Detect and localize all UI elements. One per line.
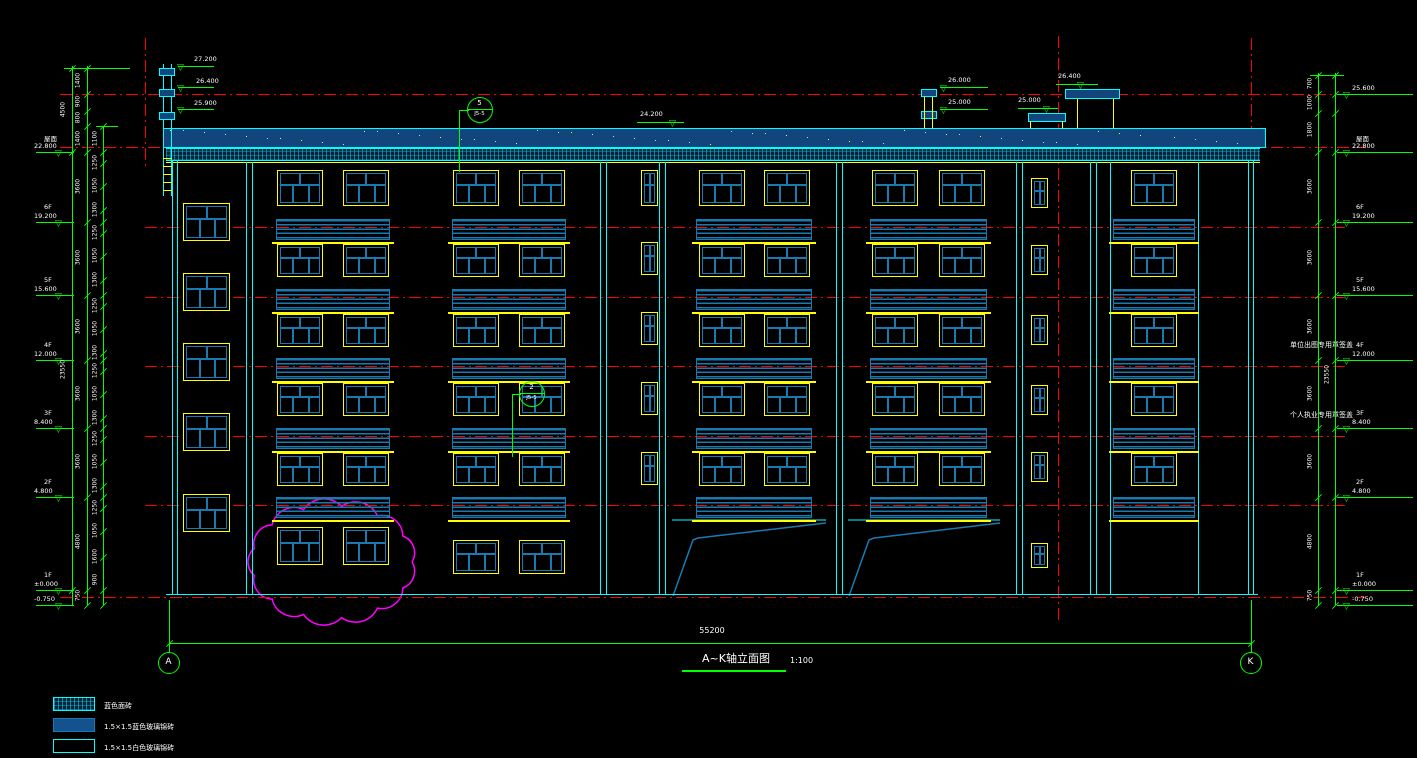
window-mullion xyxy=(484,398,486,413)
window-transom xyxy=(280,466,320,468)
roof-speckle xyxy=(280,138,281,139)
window-mullion xyxy=(786,247,788,257)
window-mullion xyxy=(887,468,889,483)
window-mullion xyxy=(1146,468,1148,483)
window-mullion xyxy=(475,317,477,327)
window xyxy=(641,382,658,415)
facade-line xyxy=(1198,162,1199,594)
facade-line xyxy=(1253,161,1254,594)
window xyxy=(277,170,323,206)
callout-divider xyxy=(520,393,544,394)
window-mullion xyxy=(308,186,310,203)
balcony-railing xyxy=(452,428,566,449)
chimney-cap xyxy=(159,68,175,76)
dimension-text: 3600 xyxy=(1307,374,1314,414)
window-mullion xyxy=(1146,259,1148,274)
dimension-text: 1800 xyxy=(1307,110,1314,150)
facade-line xyxy=(1110,162,1111,594)
window-mullion xyxy=(484,329,486,344)
dimension-tick xyxy=(84,602,91,609)
window-mullion xyxy=(214,511,216,529)
roof-box-support xyxy=(1030,121,1031,128)
window-mullion xyxy=(484,259,486,274)
window xyxy=(939,170,985,206)
vent-stack-line xyxy=(932,97,933,128)
facade-line xyxy=(836,162,837,594)
window-transom xyxy=(280,327,320,329)
detail-callout: 2J5-5 xyxy=(519,381,545,407)
window-mullion xyxy=(961,247,963,257)
roof-speckle xyxy=(1056,142,1057,143)
window xyxy=(939,383,985,416)
elevation-drawing: A~K轴立面图 1:100 55200 A K 蓝色面砖 1.5×1.5蓝色玻璃… xyxy=(0,0,1417,758)
balcony-sill xyxy=(272,520,394,522)
window-mullion xyxy=(954,329,956,344)
level-marker-icon: ▽ xyxy=(55,495,62,504)
legend-label: 蓝色面砖 xyxy=(104,701,132,711)
window-transom xyxy=(1134,466,1174,468)
axis-bubble-k: K xyxy=(1240,652,1262,674)
roof-speckle xyxy=(1043,142,1044,143)
dimension-text: 23550 xyxy=(60,350,67,390)
roof-band xyxy=(163,128,1266,148)
roof-speckle xyxy=(204,132,205,133)
level-marker-icon: ▽ xyxy=(1343,603,1350,612)
roof-speckle xyxy=(668,140,669,141)
window-transom xyxy=(875,466,915,468)
window xyxy=(183,413,230,451)
window xyxy=(277,453,323,486)
window xyxy=(519,540,565,574)
level-label: 2F xyxy=(1356,478,1364,486)
roof-speckle xyxy=(377,131,378,132)
level-marker-icon: ▽ xyxy=(177,107,184,116)
drawing-scale: 1:100 xyxy=(790,656,813,665)
level-marker-icon: ▽ xyxy=(55,603,62,612)
window-mullion xyxy=(550,398,552,413)
window-mullion xyxy=(779,186,781,203)
dimension-text: 3600 xyxy=(75,442,82,482)
balcony-railing xyxy=(696,428,812,449)
window-mullion xyxy=(970,468,972,483)
window-mullion xyxy=(468,468,470,483)
window-mullion xyxy=(468,329,470,344)
window-mullion xyxy=(649,245,651,272)
level-label: 5F xyxy=(44,276,52,284)
window-transom xyxy=(280,542,320,544)
roof-speckle xyxy=(592,134,593,135)
balcony-railing xyxy=(276,219,390,240)
window-mullion xyxy=(1153,317,1155,327)
window-mullion xyxy=(199,511,201,529)
window-mullion xyxy=(358,544,360,562)
window xyxy=(453,170,499,206)
window-mullion xyxy=(468,259,470,274)
roof-speckle xyxy=(946,134,947,135)
window-transom xyxy=(522,466,562,468)
window-mullion xyxy=(365,530,367,542)
roof-elevation-text: 27.200 xyxy=(194,55,217,63)
level-label: 6F xyxy=(1356,203,1364,211)
level-label: 3F xyxy=(1356,409,1364,417)
window-transom xyxy=(346,184,386,186)
window-mullion xyxy=(1153,247,1155,257)
window-mullion xyxy=(903,398,905,413)
window-transom xyxy=(767,466,807,468)
chimney-cap xyxy=(159,89,175,97)
window-mullion xyxy=(961,317,963,327)
dimension-text: 3600 xyxy=(1307,167,1314,207)
window xyxy=(183,494,230,532)
level-value: -0.750 xyxy=(34,595,55,603)
window-mullion xyxy=(475,543,477,553)
window xyxy=(1031,245,1048,275)
window-mullion xyxy=(1039,546,1041,565)
balcony-railing xyxy=(870,289,987,310)
roof-speckle xyxy=(1237,143,1238,144)
window xyxy=(872,170,918,206)
balcony-railing xyxy=(870,358,987,379)
window-mullion xyxy=(730,259,732,274)
balcony-railing xyxy=(696,358,812,379)
facade-line xyxy=(659,162,660,594)
window xyxy=(183,203,230,241)
dimension-text: 23550 xyxy=(1324,355,1331,395)
window-mullion xyxy=(1039,248,1041,272)
window-mullion xyxy=(541,173,543,184)
window-transom xyxy=(456,396,496,398)
window-mullion xyxy=(1146,329,1148,344)
dimension-line xyxy=(87,66,88,605)
window-transom xyxy=(1134,184,1174,186)
window-mullion xyxy=(468,398,470,413)
roof-speckle xyxy=(1195,139,1196,140)
window xyxy=(764,383,810,416)
roof-speckle xyxy=(710,144,711,145)
roof-speckle xyxy=(246,136,247,137)
dimension-line xyxy=(169,643,1251,644)
balcony-railing xyxy=(696,289,812,310)
ladder-rung xyxy=(163,174,172,175)
dimension-text: 4800 xyxy=(75,522,82,562)
roof-speckle xyxy=(364,131,365,132)
level-marker-icon: ▽ xyxy=(1343,495,1350,504)
facade-line xyxy=(252,162,253,594)
window-mullion xyxy=(649,173,651,203)
vent-stack-line xyxy=(924,97,925,128)
balcony-railing xyxy=(1113,358,1195,379)
window-mullion xyxy=(365,456,367,466)
level-marker-icon: ▽ xyxy=(177,85,184,94)
roof-speckle xyxy=(862,141,863,142)
window-mullion xyxy=(721,456,723,466)
dimension-text: 1400 xyxy=(75,119,82,159)
level-marker-icon: ▽ xyxy=(1343,92,1350,101)
level-marker-icon: ▽ xyxy=(1343,588,1350,597)
window-mullion xyxy=(214,220,216,238)
level-marker-icon: ▽ xyxy=(55,588,62,597)
window-transom xyxy=(456,327,496,329)
balcony-railing xyxy=(452,219,566,240)
level-marker-icon: ▽ xyxy=(1343,358,1350,367)
window xyxy=(277,383,323,416)
dimension-line xyxy=(940,87,988,88)
level-marker-icon: ▽ xyxy=(1043,106,1050,115)
window-mullion xyxy=(199,430,201,448)
detail-callout: 5J5-5 xyxy=(467,97,493,123)
balcony-railing xyxy=(1113,219,1195,240)
roof-speckle xyxy=(1119,133,1120,134)
balcony-railing xyxy=(870,497,987,518)
window-mullion xyxy=(1039,318,1041,342)
level-marker-icon: ▽ xyxy=(940,107,947,116)
window-transom xyxy=(456,466,496,468)
dimension-text: 4500 xyxy=(60,90,67,130)
roof-speckle xyxy=(267,138,268,139)
window-mullion xyxy=(954,398,956,413)
window-mullion xyxy=(468,555,470,571)
window xyxy=(343,244,389,277)
window-mullion xyxy=(786,317,788,327)
window xyxy=(453,314,499,347)
window-mullion xyxy=(358,398,360,413)
callout-divider xyxy=(468,109,492,110)
roof-speckle xyxy=(1022,140,1023,141)
roof-speckle xyxy=(1140,135,1141,136)
window xyxy=(277,314,323,347)
window-mullion xyxy=(292,398,294,413)
window xyxy=(872,244,918,277)
window xyxy=(1131,383,1177,416)
window-mullion xyxy=(903,329,905,344)
window-mullion xyxy=(308,398,310,413)
facade-line xyxy=(177,161,178,594)
window-mullion xyxy=(206,346,208,358)
window-mullion xyxy=(779,398,781,413)
level-marker-icon: ▽ xyxy=(1343,426,1350,435)
level-value: 19.200 xyxy=(34,212,57,220)
window-transom xyxy=(186,428,227,430)
level-value: 8.400 xyxy=(34,418,53,426)
roof-speckle xyxy=(495,141,496,142)
window-mullion xyxy=(299,317,301,327)
level-label: 1F xyxy=(1356,571,1364,579)
stamp-text-unit: 单位出图专用章签盖 xyxy=(1290,340,1353,350)
window-transom xyxy=(522,553,562,555)
overall-dimension-text: 55200 xyxy=(672,626,752,635)
window-mullion xyxy=(358,468,360,483)
balcony-railing xyxy=(696,497,812,518)
balcony-sill xyxy=(866,520,991,522)
level-label: 4F xyxy=(44,341,52,349)
window xyxy=(1031,315,1048,345)
roof-speckle xyxy=(461,139,462,140)
roof-speckle xyxy=(398,133,399,134)
window-mullion xyxy=(786,173,788,184)
dimension-line xyxy=(940,109,988,110)
ladder-rung xyxy=(163,182,172,183)
dimension-line xyxy=(512,394,513,457)
window-mullion xyxy=(541,456,543,466)
window-mullion xyxy=(308,468,310,483)
roof-speckle xyxy=(343,144,344,145)
window-mullion xyxy=(887,259,889,274)
window-mullion xyxy=(541,247,543,257)
window-mullion xyxy=(1162,186,1164,203)
window-mullion xyxy=(550,259,552,274)
window-transom xyxy=(875,184,915,186)
window-mullion xyxy=(534,186,536,203)
window-mullion xyxy=(1162,259,1164,274)
window-mullion xyxy=(903,468,905,483)
window-mullion xyxy=(887,329,889,344)
window-mullion xyxy=(299,456,301,466)
window-transom xyxy=(702,396,742,398)
level-value: 12.000 xyxy=(34,350,57,358)
window-mullion xyxy=(199,360,201,378)
roof-speckle xyxy=(634,138,635,139)
balcony-railing xyxy=(452,358,566,379)
window-mullion xyxy=(795,468,797,483)
level-value: 4.800 xyxy=(34,487,53,495)
window-transom xyxy=(186,509,227,511)
window-mullion xyxy=(1153,386,1155,396)
window xyxy=(1031,543,1048,568)
balcony-railing xyxy=(452,497,566,518)
window-mullion xyxy=(779,468,781,483)
window xyxy=(641,170,658,206)
level-marker-icon: ▽ xyxy=(1077,82,1084,91)
level-label: 3F xyxy=(44,409,52,417)
window-mullion xyxy=(779,259,781,274)
ladder-rung xyxy=(163,166,172,167)
dimension-line xyxy=(637,122,684,123)
roof-speckle xyxy=(1001,138,1002,139)
window-transom xyxy=(702,184,742,186)
window-transom xyxy=(522,327,562,329)
window xyxy=(764,314,810,347)
roof-speckle xyxy=(419,135,420,136)
level-value: 4.800 xyxy=(1352,487,1371,495)
window-mullion xyxy=(299,247,301,257)
window-mullion xyxy=(308,259,310,274)
window-mullion xyxy=(721,386,723,396)
window xyxy=(453,383,499,416)
dimension-text: 3600 xyxy=(75,307,82,347)
entrance-canopy-profile xyxy=(673,523,826,596)
window-transom xyxy=(346,257,386,259)
window-mullion xyxy=(1039,388,1041,412)
window-transom xyxy=(942,396,982,398)
dimension-line xyxy=(103,126,104,605)
window-mullion xyxy=(308,544,310,562)
window-transom xyxy=(280,257,320,259)
window-mullion xyxy=(954,186,956,203)
window-mullion xyxy=(475,456,477,466)
window xyxy=(519,244,565,277)
level-marker-icon: ▽ xyxy=(1343,293,1350,302)
window-mullion xyxy=(894,386,896,396)
balcony-railing xyxy=(1113,497,1195,518)
window-transom xyxy=(186,288,227,290)
axis-grid-line xyxy=(60,597,1365,598)
axis-grid-line xyxy=(145,38,146,168)
balcony-railing xyxy=(452,289,566,310)
dimension-text: 750 xyxy=(1307,576,1314,616)
window-mullion xyxy=(534,259,536,274)
window xyxy=(277,527,323,565)
window-transom xyxy=(280,396,320,398)
window-mullion xyxy=(206,416,208,428)
window-mullion xyxy=(468,186,470,203)
window-mullion xyxy=(374,259,376,274)
window-mullion xyxy=(214,360,216,378)
roof-speckle xyxy=(655,140,656,141)
window-mullion xyxy=(358,329,360,344)
window xyxy=(641,312,658,345)
window-mullion xyxy=(534,555,536,571)
roof-speckle xyxy=(301,140,302,141)
window xyxy=(1131,314,1177,347)
roof-elevation-text: 26.400 xyxy=(1058,72,1081,80)
window-transom xyxy=(767,184,807,186)
window-mullion xyxy=(541,543,543,553)
window xyxy=(764,244,810,277)
window-mullion xyxy=(365,386,367,396)
window-mullion xyxy=(779,329,781,344)
facade-line xyxy=(606,162,607,594)
window-mullion xyxy=(714,329,716,344)
level-value: 22.800 xyxy=(34,142,57,150)
window-transom xyxy=(875,327,915,329)
window-mullion xyxy=(365,317,367,327)
window-mullion xyxy=(199,220,201,238)
window xyxy=(183,343,230,381)
ladder-rung xyxy=(163,190,172,191)
level-label: 5F xyxy=(1356,276,1364,284)
roof-elevation-text: 25.000 xyxy=(948,98,971,106)
balcony-railing xyxy=(276,497,390,518)
window-mullion xyxy=(903,186,905,203)
facade-line xyxy=(1090,162,1091,594)
balcony-railing xyxy=(1113,428,1195,449)
chimney-cap xyxy=(159,112,175,120)
window-mullion xyxy=(714,398,716,413)
window-mullion xyxy=(1153,173,1155,184)
window-transom xyxy=(702,327,742,329)
window-mullion xyxy=(649,385,651,412)
window-mullion xyxy=(894,317,896,327)
drawing-title: A~K轴立面图 xyxy=(684,650,788,666)
level-marker-icon: ▽ xyxy=(55,426,62,435)
window xyxy=(519,314,565,347)
window-mullion xyxy=(795,398,797,413)
window-transom xyxy=(186,218,227,220)
window-mullion xyxy=(292,186,294,203)
dimension-text: 750 xyxy=(75,576,82,616)
window xyxy=(453,244,499,277)
window-transom xyxy=(346,466,386,468)
window-transom xyxy=(456,553,496,555)
window-mullion xyxy=(292,468,294,483)
callout-number: 5 xyxy=(468,99,491,107)
roof-elevation-text: 25.000 xyxy=(1018,96,1041,104)
window-mullion xyxy=(714,259,716,274)
entrance-canopy-profile xyxy=(849,523,1000,596)
window-mullion xyxy=(534,468,536,483)
roof-speckle xyxy=(1174,137,1175,138)
dimension-line xyxy=(1018,108,1058,109)
